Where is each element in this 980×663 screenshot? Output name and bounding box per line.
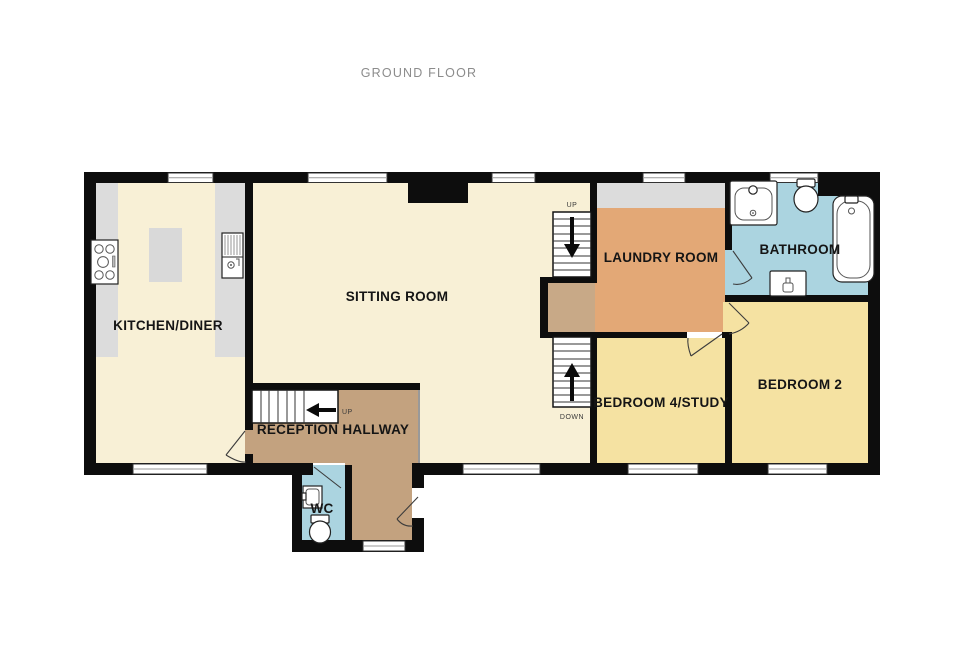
stairs-up-label: UP bbox=[567, 202, 578, 209]
kitchen-divider-stub bbox=[245, 454, 253, 463]
window bbox=[168, 173, 213, 183]
radiator-icon bbox=[770, 271, 806, 296]
room-label-bedroom4-study: BEDROOM 4/STUDY bbox=[593, 395, 729, 410]
window bbox=[492, 173, 535, 183]
window bbox=[643, 173, 685, 183]
extension-wall-right-upper bbox=[412, 463, 424, 488]
extension-wall-right-lower bbox=[412, 518, 424, 552]
chimney-breast bbox=[408, 183, 468, 203]
window bbox=[308, 173, 387, 183]
bathroom-corner-block bbox=[818, 183, 868, 196]
room-label-laundry-room: LAUNDRY ROOM bbox=[604, 250, 719, 265]
floor-plan-page: UP DOWN UP bbox=[0, 0, 980, 663]
bathroom-basin-icon bbox=[730, 181, 777, 225]
hallway-sitting-threshold bbox=[418, 390, 420, 463]
window bbox=[768, 464, 827, 474]
room-fills bbox=[96, 183, 868, 540]
page-title: GROUND FLOOR bbox=[361, 66, 478, 80]
stair-arrow-gap bbox=[306, 391, 337, 422]
floor-plan: UP DOWN UP bbox=[0, 0, 980, 663]
room-label-bedroom2: BEDROOM 2 bbox=[758, 377, 842, 392]
hallway-extension-floor bbox=[345, 463, 412, 540]
extension-wall-left bbox=[292, 463, 302, 552]
room-label-kitchen-diner: KITCHEN/DINER bbox=[113, 318, 223, 333]
stair-landing-floor bbox=[548, 283, 595, 332]
landing-wall-left bbox=[540, 277, 548, 338]
wc-wall-right bbox=[345, 465, 352, 540]
room-label-reception-hallway: RECEPTION HALLWAY bbox=[257, 422, 409, 437]
room-label-wc: WC bbox=[310, 501, 333, 516]
window bbox=[133, 464, 207, 474]
kitchen-island bbox=[149, 228, 182, 282]
laundry-floor bbox=[595, 208, 725, 332]
stairs-main-up: UP bbox=[553, 202, 591, 277]
bathtub-icon bbox=[833, 196, 874, 282]
window bbox=[628, 464, 698, 474]
toilet-icon bbox=[794, 179, 818, 212]
window bbox=[463, 464, 540, 474]
laundry-counter bbox=[595, 183, 725, 208]
hallway-top-wall bbox=[245, 383, 420, 390]
landing-wall-top bbox=[540, 277, 597, 283]
stairs-down-label: DOWN bbox=[560, 414, 584, 421]
wc-toilet-icon bbox=[310, 515, 331, 543]
laundry-bottom-wall bbox=[595, 332, 687, 338]
hob-icon bbox=[91, 240, 118, 284]
room-label-sitting-room: SITTING ROOM bbox=[346, 289, 449, 304]
room-label-bathroom: BATHROOM bbox=[760, 242, 841, 257]
hall-stairs-up-label: UP bbox=[342, 409, 353, 416]
kitchen-sink-icon bbox=[222, 233, 243, 278]
window bbox=[363, 541, 405, 551]
stairs-hallway-up: UP bbox=[252, 390, 353, 423]
wall-left bbox=[84, 172, 96, 475]
